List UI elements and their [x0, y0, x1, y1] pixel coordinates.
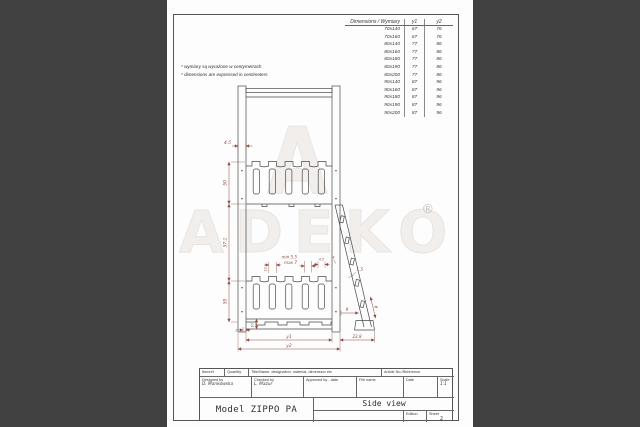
size-cell-y2: 96	[424, 110, 453, 118]
size-cell-y1: 77	[404, 41, 424, 49]
size-table-row: 80x200 77 86	[345, 72, 453, 80]
size-cell-dimension: 90x140	[345, 79, 404, 87]
model-name: Model ZIPPO PA	[200, 398, 313, 422]
size-table-row: 90x190 87 96	[345, 102, 453, 110]
size-cell-dimension: 80x160	[345, 49, 404, 57]
dim-length-outer: y2	[285, 343, 292, 349]
size-cell-y1: 67	[404, 34, 424, 42]
size-cell-dimension: 80x200	[345, 72, 404, 80]
view-name: Side view	[313, 398, 454, 411]
size-cell-y2: 76	[424, 34, 453, 42]
title-block-title-name: Title/Name, designation, material, dimen…	[248, 369, 381, 377]
size-cell-y2: 96	[424, 94, 453, 102]
left-post	[238, 86, 246, 332]
lower-slats	[253, 284, 324, 309]
size-cell-y1: 87	[404, 79, 424, 87]
size-cell-y2: 86	[424, 72, 453, 80]
title-block-date: Date	[403, 377, 437, 398]
size-table-header-y2: y2	[424, 19, 453, 25]
size-table-row: 80x180 77 86	[345, 56, 453, 64]
dim-lower-guard-height: 50	[223, 299, 229, 305]
size-cell-y2: 96	[424, 87, 453, 95]
size-cell-y2: 96	[424, 102, 453, 110]
size-cell-dimension: 70x160	[345, 34, 404, 42]
size-table: Dimensions / Wymiary y1 y2 70x140 67 76 …	[345, 16, 453, 117]
title-block-edition: Edition	[403, 411, 426, 422]
size-table-body: 70x140 67 76 70x160 67 76 80x140 77 86 8…	[345, 26, 453, 117]
dim-rung-thickness: 1.5	[357, 267, 364, 272]
checked-by-value: L. Mazur	[254, 383, 303, 388]
size-table-row: 70x160 67 76	[345, 34, 453, 42]
size-cell-y2: 76	[424, 26, 453, 34]
title-block: Itemref Quantity Title/Name, designation…	[199, 368, 453, 421]
drawing-viewer: A ADEKO ®	[0, 0, 640, 427]
title-block-article: Article No./Reference	[381, 369, 454, 377]
bed-geometry	[238, 86, 375, 332]
size-cell-dimension: 90x190	[345, 102, 404, 110]
units-note-en: * dimensions are expressed in centimeter…	[181, 71, 268, 79]
size-cell-y1: 87	[404, 102, 424, 110]
size-cell-dimension: 90x160	[345, 87, 404, 95]
dim-ladder-reach: 23.8	[352, 334, 362, 339]
fastener-dots	[241, 170, 336, 312]
size-cell-y2: 86	[424, 49, 453, 57]
title-block-itemref: Itemref	[200, 369, 224, 377]
size-cell-y1: 77	[404, 49, 424, 57]
date-label: Date	[406, 378, 437, 382]
size-table-header-y1: y1	[404, 19, 424, 25]
sheet-value: 2	[429, 417, 454, 422]
title-block-sheet: Sheet 2	[426, 411, 454, 422]
dim-slat-pitch: 12	[264, 267, 268, 271]
upper-guard-rail	[246, 162, 332, 207]
designed-by-value: D. Mankowska	[202, 383, 251, 388]
size-table-row: 90x160 87 96	[345, 87, 453, 95]
size-table-row: 70x140 67 76	[345, 26, 453, 34]
dim-length-inner: y1	[285, 334, 292, 340]
ladder-rungs	[340, 216, 365, 308]
size-table-header-dimensions: Dimensions / Wymiary	[345, 19, 404, 25]
size-cell-y1: 87	[404, 87, 424, 95]
title-block-approved-by: Approved by - date	[303, 377, 356, 398]
size-table-row: 90x180 87 96	[345, 94, 453, 102]
dim-slat-width: 4.5	[319, 258, 324, 262]
dim-post-width: 4.5	[224, 140, 231, 146]
ladder-foot	[355, 321, 375, 331]
size-cell-y2: 86	[424, 56, 453, 64]
title-block-designed-by: Designed by D. Mankowska	[200, 377, 251, 398]
dim-end-gap: 4	[332, 256, 334, 260]
size-table-header: Dimensions / Wymiary y1 y2	[345, 16, 453, 26]
top-rail	[246, 89, 332, 93]
size-cell-y1: 77	[404, 72, 424, 80]
size-cell-y2: 96	[424, 79, 453, 87]
units-note-pl: * wymiary są wyrażone w centymetrach	[181, 63, 268, 71]
title-block-file-name: File name	[356, 377, 403, 398]
size-table-row: 90x140 87 96	[345, 79, 453, 87]
size-cell-y2: 86	[424, 64, 453, 72]
title-block-checked-by: Checked by L. Mazur	[251, 377, 303, 398]
dim-ladder-base-offset: 9	[346, 307, 349, 312]
dim-slat-gap-max: max 7	[284, 260, 297, 265]
size-cell-dimension: 90x180	[345, 94, 404, 102]
dim-upper-guard-height: 50	[223, 180, 229, 186]
size-cell-y2: 86	[424, 41, 453, 49]
size-cell-y1: 87	[404, 110, 424, 118]
size-cell-dimension: 90x200	[345, 110, 404, 118]
size-table-row: 90x200 87 96	[345, 110, 453, 118]
size-cell-dimension: 80x180	[345, 56, 404, 64]
size-table-row: 80x160 77 86	[345, 49, 453, 57]
drawing-sheet: A ADEKO ®	[167, 0, 473, 427]
dim-base-height: 10	[251, 323, 255, 327]
dim-middle-height: 57.1	[223, 237, 229, 247]
size-table-row: 80x140 77 86	[345, 41, 453, 49]
upper-slats	[253, 169, 324, 194]
size-cell-dimension: 80x190	[345, 64, 404, 72]
size-table-row: 80x190 77 86	[345, 64, 453, 72]
title-block-spacer-cell	[313, 411, 403, 422]
size-cell-dimension: 70x140	[345, 26, 404, 34]
size-cell-y1: 77	[404, 56, 424, 64]
base-rail	[246, 322, 332, 329]
file-name-label: File name	[359, 378, 403, 382]
dim-base-lip: 2	[235, 329, 237, 333]
lower-guard-rail	[246, 277, 332, 320]
size-cell-y1: 87	[404, 94, 424, 102]
approved-by-label: Approved by - date	[306, 378, 356, 382]
scale-value: 1:1	[440, 383, 454, 388]
title-block-scale: Scale 1:1	[437, 377, 454, 398]
dim-rung-spacing: 9	[374, 305, 379, 308]
size-cell-y1: 77	[404, 64, 424, 72]
size-cell-y1: 67	[404, 26, 424, 34]
title-block-quantity: Quantity	[224, 369, 248, 377]
units-note: * wymiary są wyrażone w centymetrach * d…	[181, 63, 268, 79]
size-cell-dimension: 80x140	[345, 41, 404, 49]
dim-slat-gap-min: min 5.5	[281, 255, 297, 260]
